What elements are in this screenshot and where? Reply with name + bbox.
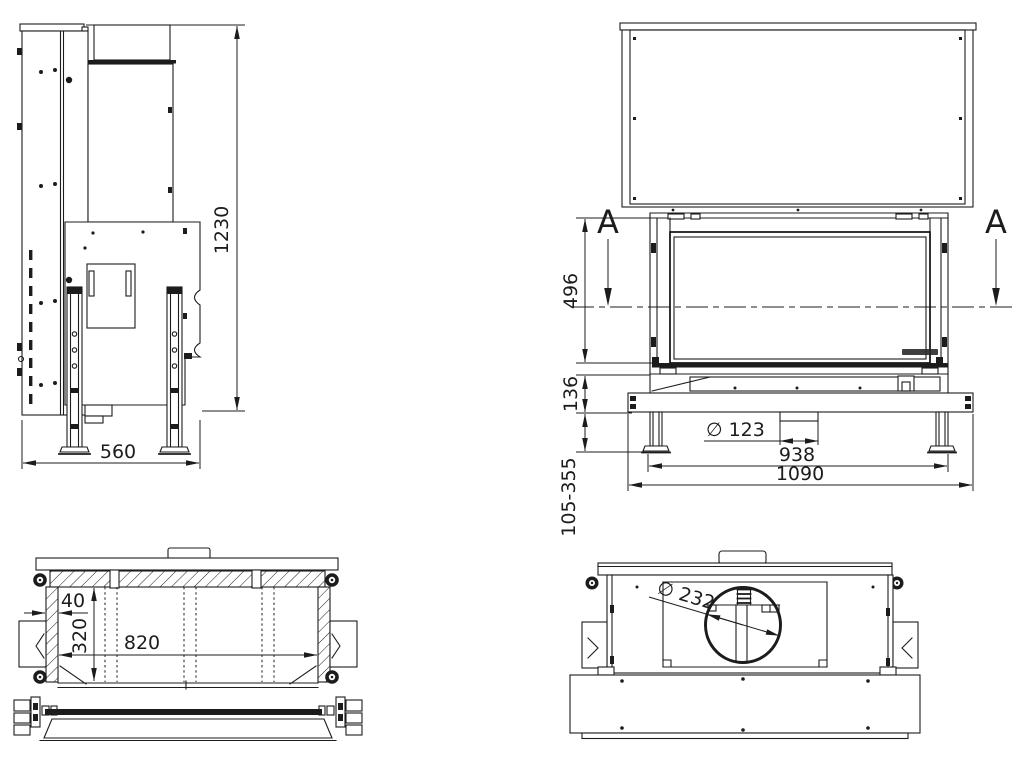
dim-leg-range: 105-355 (558, 414, 644, 537)
section-aa-view: 40 320 820 (14, 548, 362, 741)
section-label-left: A (597, 203, 619, 241)
section-label-right: A (985, 203, 1007, 241)
dim-label-wall: 40 (61, 590, 85, 612)
dim-label-depth: 560 (100, 441, 136, 463)
dim-inner-width: 820 (59, 632, 317, 655)
top-base (570, 675, 920, 733)
dim-label-glass-height: 496 (560, 273, 582, 309)
dim-label-base-height: 136 (560, 376, 582, 412)
firebox-body-side (88, 64, 173, 222)
dim-label-height: 1230 (211, 206, 233, 254)
glass-front (670, 232, 930, 363)
flue-spigot (94, 25, 170, 60)
insulation-top (50, 571, 325, 587)
top-bracket-right (893, 622, 918, 668)
plinth (628, 393, 973, 412)
mount-nub (17, 48, 22, 55)
dim-label-intake: ∅ 123 (706, 419, 765, 441)
dim-label-inner-depth: 320 (69, 618, 91, 654)
top-view: ∅ 232 (570, 551, 920, 739)
hood-panel (622, 30, 973, 207)
dim-label-total-width: 1090 (776, 463, 824, 485)
side-bracket-right (330, 621, 357, 667)
dim-intake-diameter: ∅ 123 (704, 419, 818, 445)
side-view: 1230 560 (17, 24, 245, 469)
top-bracket-left (582, 622, 607, 668)
section-marker-a-right: A (985, 203, 1007, 306)
dim-label-leg-range: 105-355 (558, 457, 580, 536)
drawing-canvas: 1230 560 (0, 0, 1024, 758)
front-leg-left (642, 412, 670, 453)
insulation-right-wall (318, 587, 330, 682)
mount-nub (17, 368, 22, 376)
dim-label-inner-width: 820 (124, 632, 160, 654)
insulation-left-wall (46, 587, 58, 682)
mount-nub (17, 123, 22, 130)
brand-mark (902, 349, 938, 355)
technical-drawing-page: 1230 560 (0, 0, 1024, 758)
mount-nub (17, 343, 22, 351)
drawer-tray (44, 719, 332, 738)
front-view: A A 496 136 105-355 (558, 23, 1014, 537)
vent-slots (29, 250, 32, 404)
front-leg-right (928, 412, 956, 453)
side-bracket-left (19, 621, 46, 667)
air-intake (780, 412, 818, 421)
